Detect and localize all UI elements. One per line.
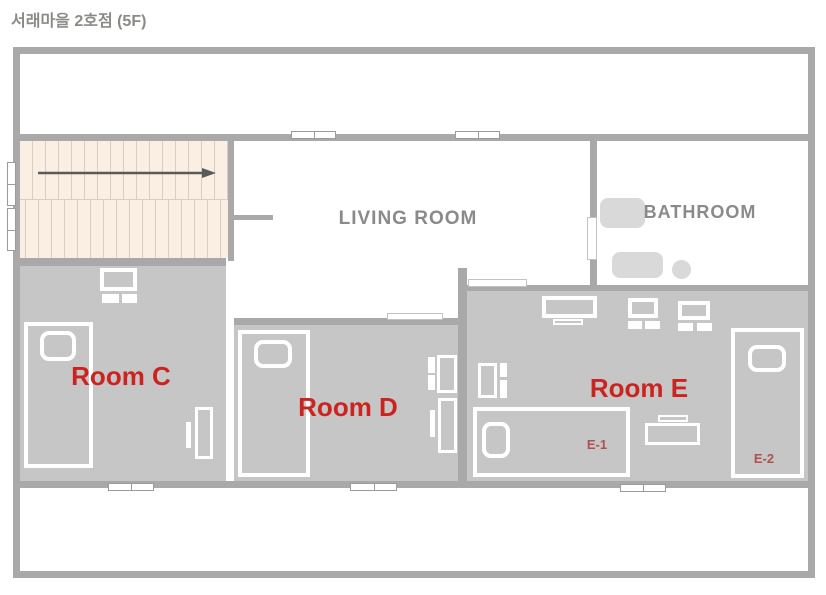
pillow-icon-e2 — [748, 345, 786, 372]
keyboard-icon-room-c-2 — [122, 294, 137, 303]
page-title: 서래마을 2호점 (5F) — [11, 7, 146, 31]
monitor-icon-room-c — [100, 268, 137, 291]
bed-e2-label: E-2 — [734, 451, 794, 466]
room-c-label: Room C — [61, 361, 181, 392]
wall-bathroom-left-upper — [590, 141, 597, 217]
pillow-icon-room-c — [40, 331, 76, 361]
door-room-d — [387, 313, 443, 320]
chair-icon-room-e-left-1 — [500, 363, 507, 377]
pillow-icon-e1 — [482, 422, 510, 458]
desk-icon-room-d-2 — [438, 398, 457, 453]
wall-stub-living-room — [234, 215, 273, 220]
chair-icon-room-e-mid — [658, 415, 688, 422]
desk-icon-room-c — [195, 407, 213, 459]
window-top-2 — [455, 131, 500, 139]
keyboard-icon-room-e-3b — [697, 323, 712, 331]
chair-icon-room-e-left-2 — [500, 380, 507, 398]
staircase — [20, 141, 228, 258]
pillow-icon-room-d — [254, 340, 292, 368]
monitor-icon-room-e-3 — [678, 301, 710, 320]
living-room-label: LIVING ROOM — [328, 208, 488, 230]
bathtub-icon — [612, 252, 663, 278]
wall-stairs-right — [228, 141, 234, 261]
window-left-1 — [7, 162, 16, 206]
chair-icon-room-d-3 — [430, 410, 435, 437]
outer-wall-top — [13, 47, 815, 54]
keyboard-icon-room-c-1 — [102, 294, 119, 303]
door-bathroom — [587, 217, 597, 260]
chair-icon-room-d-2 — [428, 375, 435, 390]
outer-wall-left — [13, 47, 20, 578]
desk-icon-room-e-mid — [645, 423, 700, 445]
monitor-icon-room-e-1 — [542, 296, 597, 318]
keyboard-icon-room-e-2b — [645, 321, 660, 329]
toilet-icon — [672, 260, 691, 279]
stair-direction-arrow-icon — [38, 166, 216, 178]
desk-icon-room-d-1 — [437, 355, 457, 393]
outer-wall-bottom — [13, 571, 815, 578]
stair-treads-lower — [20, 200, 228, 258]
keyboard-icon-room-e-3a — [678, 323, 693, 331]
room-d-label: Room D — [288, 392, 408, 423]
floor-plan: 서래마을 2호점 (5F) — [0, 0, 826, 595]
window-bottom-2 — [350, 483, 397, 491]
monitor-icon-room-e-2 — [628, 298, 658, 318]
room-e-label: Room E — [579, 373, 699, 404]
door-room-e — [468, 279, 527, 287]
wall-room-c-top — [13, 258, 226, 266]
wall-room-d-e-divider — [458, 268, 467, 481]
window-left-2 — [7, 208, 16, 251]
chair-icon-room-d-1 — [428, 357, 435, 373]
window-top-1 — [291, 131, 336, 139]
outer-wall-right — [808, 47, 815, 578]
bathroom-label: BATHROOM — [630, 202, 770, 223]
window-bottom-1 — [108, 483, 154, 491]
chair-icon-room-c — [186, 422, 191, 448]
keyboard-icon-room-e-2a — [628, 321, 642, 329]
monitor-stand-icon-room-e-1 — [553, 319, 583, 325]
desk-icon-room-e-left — [478, 363, 497, 398]
window-bottom-3 — [620, 484, 666, 492]
wall-upper-divider — [13, 134, 815, 141]
bed-e1-label: E-1 — [567, 437, 627, 452]
